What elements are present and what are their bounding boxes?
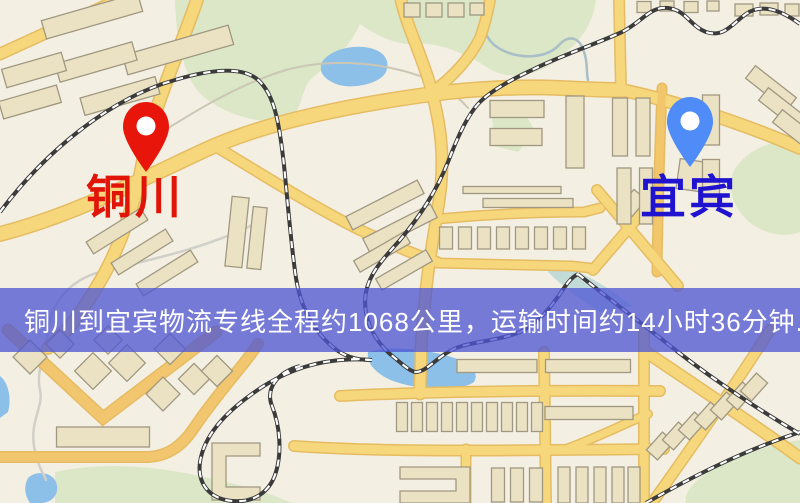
- logistics-route-map: 铜川 宜宾 铜川到宜宾物流专线全程约1068公里，运输时间约14小时36分钟.: [0, 0, 800, 503]
- destination-city-label: 宜宾: [640, 174, 738, 220]
- origin-pin-icon[interactable]: [123, 102, 169, 172]
- route-info-text: 铜川到宜宾物流专线全程约1068公里，运输时间约14小时36分钟.: [24, 302, 800, 339]
- destination-pin-icon[interactable]: [667, 97, 713, 167]
- origin-city-label: 铜川: [86, 174, 184, 220]
- map-canvas[interactable]: [0, 0, 800, 503]
- route-info-banner: 铜川到宜宾物流专线全程约1068公里，运输时间约14小时36分钟.: [0, 288, 800, 352]
